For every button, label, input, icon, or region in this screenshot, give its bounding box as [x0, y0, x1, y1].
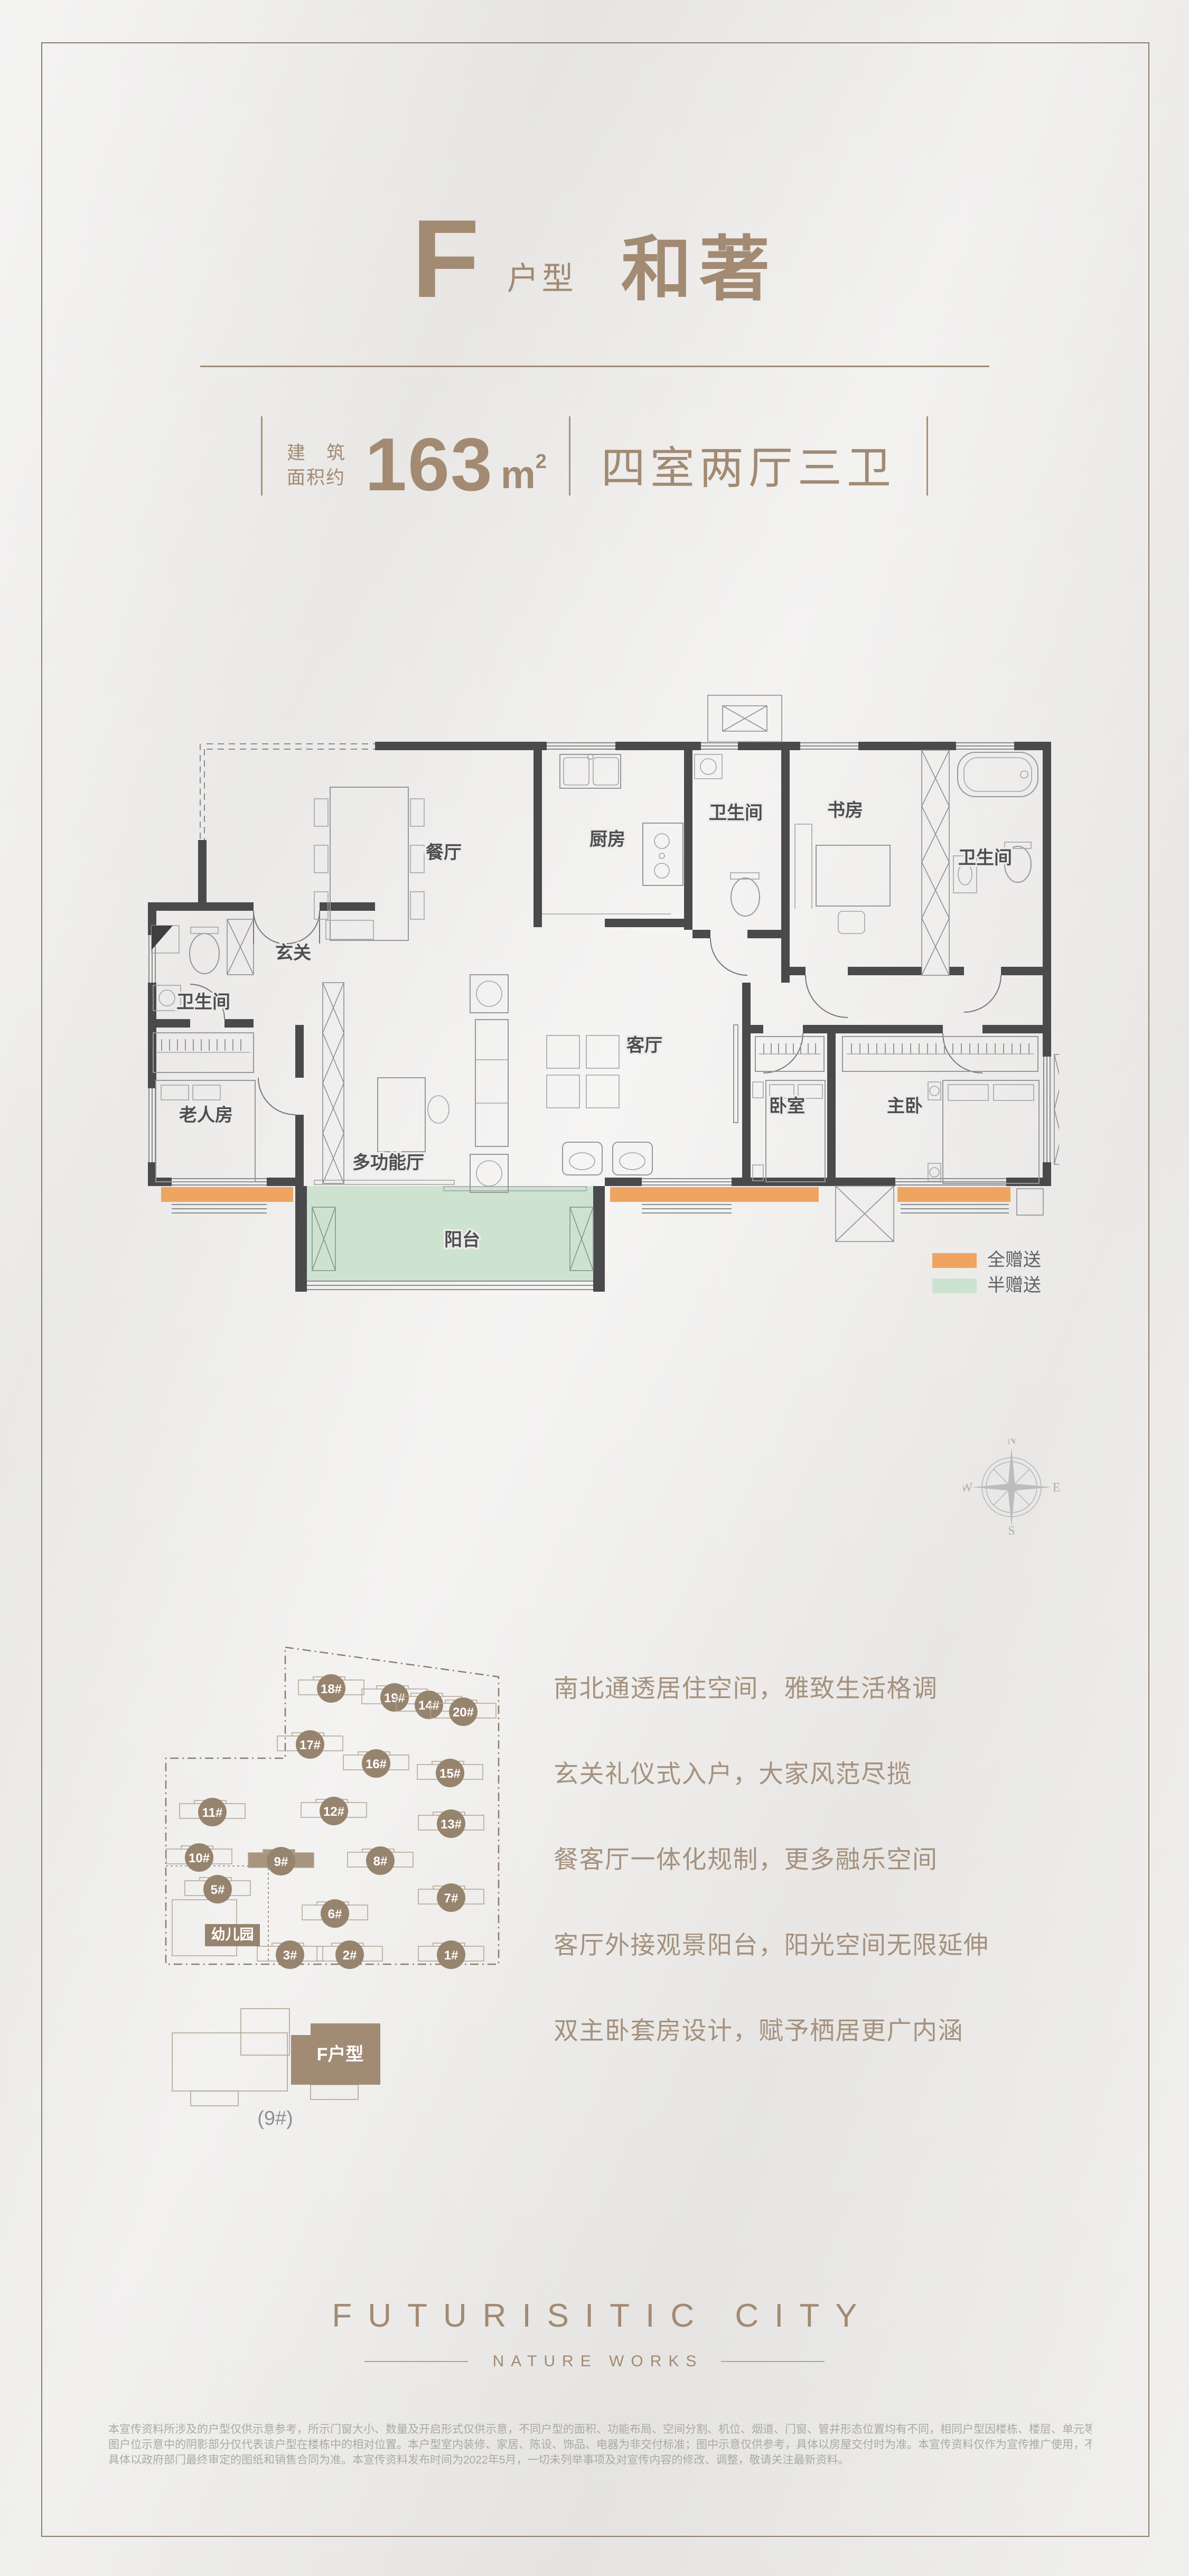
feature-item: 客厅外接观景阳台，阳光空间无限延伸: [554, 1933, 1098, 1958]
site-building: 6#: [302, 1899, 368, 1928]
legend-label-full: 全赠送: [987, 1250, 1041, 1270]
brochure-page: F 户型 和著 建筑 面积约 163 m2 四室两厅三卫: [0, 0, 1189, 2576]
room-label-living: 客厅: [626, 1035, 662, 1056]
svg-text:16#: 16#: [366, 1757, 387, 1771]
room-label-dining: 餐厅: [426, 843, 462, 863]
plan-legend: 全赠送 半赠送: [932, 1250, 1041, 1294]
svg-text:7#: 7#: [444, 1891, 458, 1906]
disclaimer-line: 具体以政府部门最终审定的图纸和销售合同为准。本宣传资料发布时间为2022年5月，…: [108, 2452, 1092, 2468]
compass-n: N: [1007, 1439, 1016, 1447]
header: F 户型 和著: [0, 216, 1189, 302]
legend-swatch-full: [932, 1253, 977, 1268]
compass-w: W: [963, 1481, 973, 1495]
site-building: 5#: [185, 1875, 250, 1903]
gift-strip: [610, 1187, 819, 1202]
room-label-master: 主卧: [887, 1096, 923, 1116]
compass-s: S: [1008, 1524, 1015, 1536]
bay-window: [1054, 1054, 1059, 1164]
header-divider: [200, 366, 989, 367]
room-label-foyer: 玄关: [275, 943, 311, 963]
room-label-balcony: 阳台: [444, 1230, 480, 1250]
svg-text:18#: 18#: [321, 1682, 342, 1696]
area-group: 建筑 面积约 163 m2: [287, 416, 547, 496]
feature-item: 双主卧套房设计，赋予栖居更广内涵: [554, 2018, 1098, 2043]
compass-rose: N E S W: [963, 1439, 1060, 1536]
site-building: 16#: [343, 1749, 409, 1778]
highlight-unit-label: F户型: [317, 2045, 364, 2065]
building-diagram: F户型 (9#): [156, 2002, 547, 2134]
svg-text:12#: 12#: [323, 1805, 344, 1819]
area-band: 建筑 面积约 163 m2 四室两厅三卫: [0, 416, 1189, 496]
unit-name: 和著: [621, 237, 778, 302]
doors: [190, 911, 1001, 1115]
logo-line-left: [364, 2361, 468, 2362]
area-label: 建筑 面积约: [287, 441, 346, 496]
area-label-l2: 面积约: [287, 465, 346, 490]
logo-subtitle: NATURE WORKS: [486, 2353, 704, 2370]
disclaimer-line: 本宣传资料所涉及的户型仅供示意参考，所示门窗大小、数量及开启形式仅供示意，不同户…: [108, 2422, 1092, 2437]
room-label-elder: 老人房: [179, 1105, 233, 1125]
feature-item: 餐客厅一体化规制，更多融乐空间: [554, 1847, 1098, 1872]
svg-text:5#: 5#: [211, 1883, 225, 1897]
legend-label-semi: 半赠送: [987, 1275, 1041, 1294]
room-label-study: 书房: [827, 800, 863, 820]
room-label-bedroom: 卧室: [769, 1096, 805, 1116]
floor-plan-svg: 餐厅 厨房 卫生间 书房 卫生间 玄关 卫生间 老人房 多功能厅 客厅 卧室 主…: [140, 687, 1059, 1294]
site-building: 9#: [248, 1847, 314, 1875]
area-label-l1a: 建: [287, 441, 306, 465]
layout-group: 四室两厅三卫: [601, 416, 896, 496]
gift-strip: [897, 1187, 1010, 1202]
feature-item: 玄关礼仪式入户，大家风范尽揽: [554, 1761, 1098, 1787]
unit-letter: F: [411, 216, 479, 302]
room-label-kitchen: 厨房: [589, 829, 625, 850]
project-logo: FUTURISITIC CITY NATURE WORKS: [225, 2297, 965, 2370]
feature-item: 南北通透居住空间，雅致生活格调: [554, 1676, 1098, 1701]
svg-text:11#: 11#: [202, 1806, 223, 1820]
site-building: 11#: [180, 1798, 245, 1826]
disclaimer-line: 图户位示意中的阴影部分仅代表该户型在楼栋中的相对位置。本户型室内装修、家居、陈设…: [108, 2437, 1092, 2452]
svg-text:15#: 15#: [439, 1767, 461, 1781]
area-unit-sup: 2: [536, 451, 547, 473]
svg-text:3#: 3#: [283, 1948, 297, 1963]
site-building: 13#: [418, 1809, 484, 1838]
disclaimer: 本宣传资料所涉及的户型仅供示意参考，所示门窗大小、数量及开启形式仅供示意，不同户…: [108, 2422, 1092, 2468]
kindergarten-label: 幼儿园: [211, 1927, 254, 1943]
svg-text:9#: 9#: [274, 1855, 288, 1869]
site-building: 10#: [166, 1843, 232, 1872]
area-unit-m: m: [501, 453, 536, 497]
svg-text:17#: 17#: [299, 1738, 321, 1752]
site-building: 12#: [301, 1797, 367, 1825]
svg-text:10#: 10#: [189, 1851, 210, 1865]
area-label-l1b: 筑: [326, 441, 346, 465]
divider-bar: [569, 416, 570, 496]
svg-text:1#: 1#: [444, 1948, 458, 1963]
legend-swatch-semi: [932, 1278, 977, 1293]
layout-text: 四室两厅三卫: [601, 446, 896, 496]
logo-line-right: [721, 2361, 825, 2362]
svg-text:6#: 6#: [328, 1907, 342, 1921]
building-caption: (9#): [257, 2107, 293, 2130]
divider-bar: [926, 416, 928, 496]
svg-text:19#: 19#: [384, 1691, 405, 1705]
site-building: 15#: [417, 1759, 483, 1787]
area-unit: m2: [501, 452, 547, 496]
site-building: 18#: [298, 1674, 364, 1703]
svg-text:13#: 13#: [441, 1817, 462, 1832]
room-label-bath-top: 卫生间: [709, 803, 763, 823]
compass-e: E: [1053, 1481, 1060, 1495]
feature-list: 南北通透居住空间，雅致生活格调 玄关礼仪式入户，大家风范尽揽 餐客厅一体化规制，…: [554, 1676, 1098, 2104]
room-label-multi: 多功能厅: [352, 1153, 424, 1173]
site-building: 8#: [348, 1846, 413, 1875]
site-plan-svg: 18#19#14#20#17#16#15#11#12#13#10#9#8#5#7…: [154, 1638, 532, 2002]
void-dashed-lines: [200, 744, 375, 840]
room-label-bath-right: 卫生间: [958, 848, 1012, 868]
area-value: 163: [365, 434, 493, 496]
unit-type-label: 户型: [507, 253, 577, 302]
site-building: 17#: [277, 1730, 343, 1759]
logo-title: FUTURISITIC CITY: [225, 2297, 965, 2335]
svg-text:8#: 8#: [373, 1854, 388, 1869]
room-label-bath-left: 卫生间: [176, 992, 230, 1012]
svg-text:14#: 14#: [418, 1698, 439, 1713]
svg-text:20#: 20#: [453, 1705, 474, 1720]
site-building: 7#: [418, 1883, 484, 1912]
svg-text:2#: 2#: [343, 1948, 357, 1963]
divider-bar: [261, 416, 263, 496]
elevator-shaft: [708, 695, 782, 742]
gift-strip: [161, 1187, 293, 1202]
